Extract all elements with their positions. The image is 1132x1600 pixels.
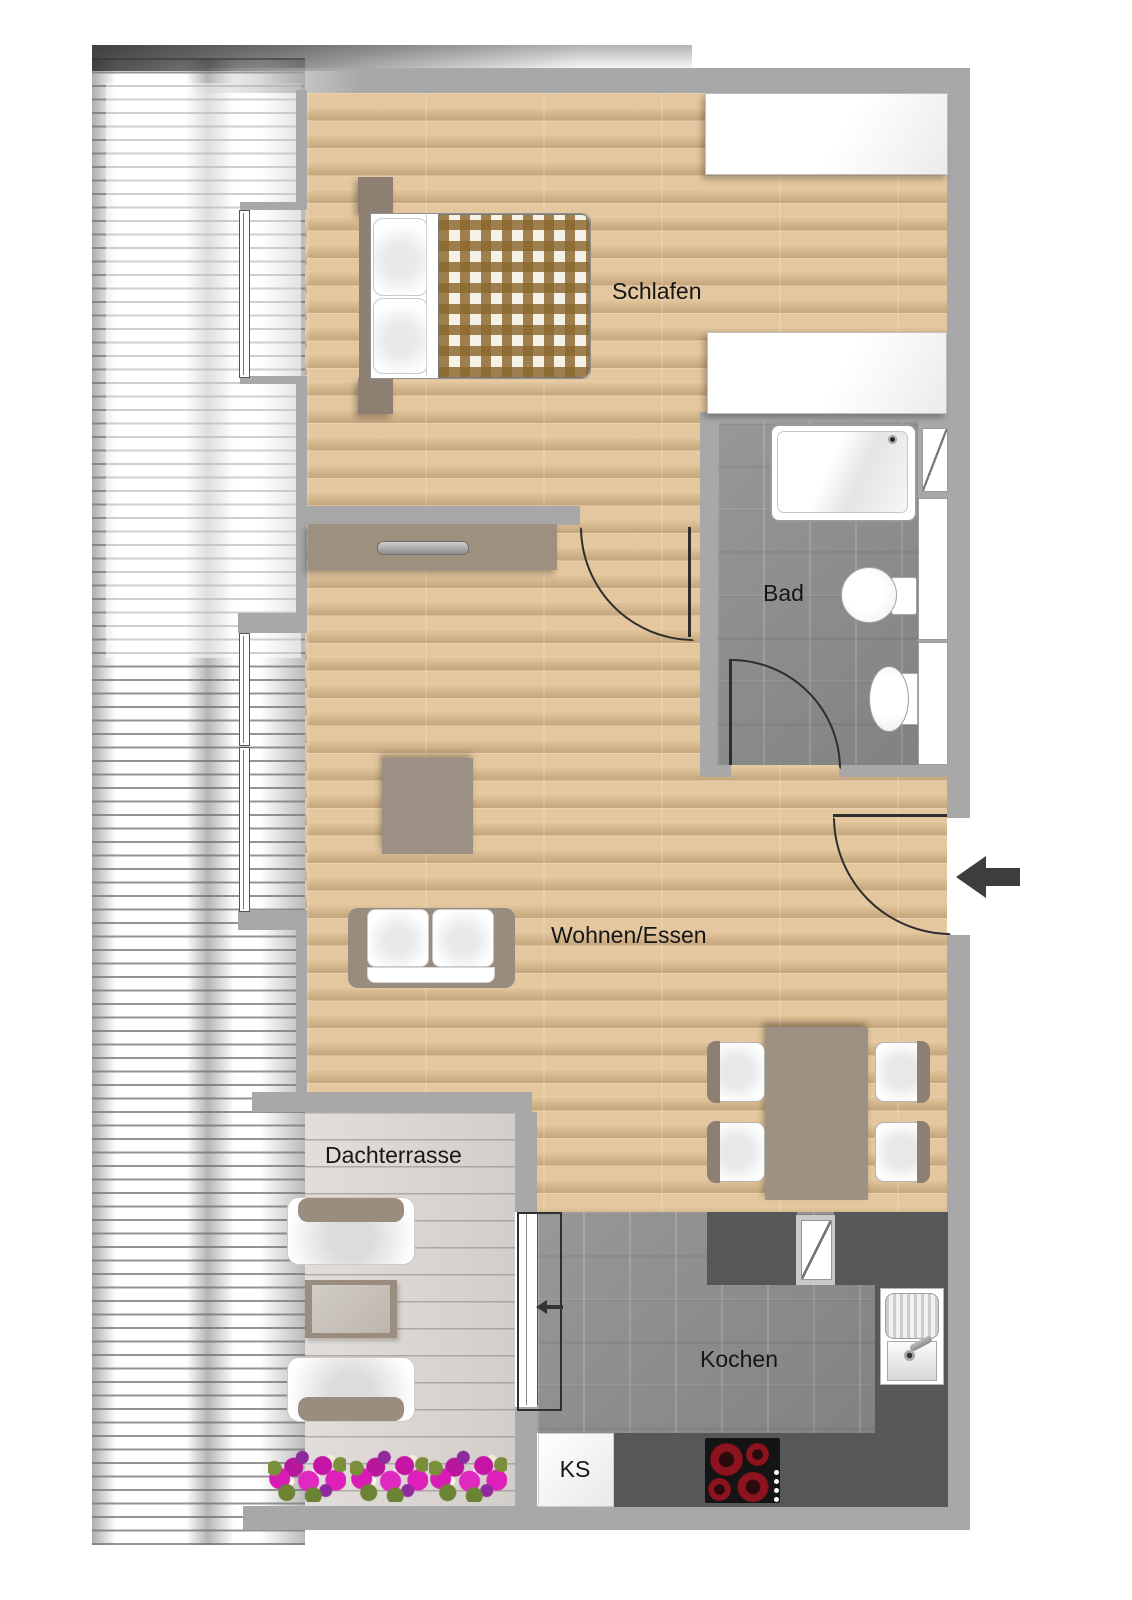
terrace-right-wall-lower	[515, 1407, 537, 1530]
double-bed	[359, 212, 590, 379]
kitchen-label: Kochen	[700, 1348, 778, 1371]
stove-burner-large-br	[737, 1472, 769, 1502]
kitchen-sink-drainboard	[885, 1293, 939, 1339]
kitchen-counter-right-top	[834, 1212, 948, 1285]
bedroom-living-divider-wall	[296, 506, 580, 525]
flower-box-right	[429, 1450, 507, 1502]
floor-plan: KS Schlafen Bad Wohnen/Essen Dachterra	[0, 0, 1132, 1600]
wardrobe-middle	[707, 332, 947, 414]
stove-burner-small-tr	[746, 1443, 769, 1466]
nightstand-top	[358, 177, 393, 213]
bathroom-sink	[869, 666, 909, 732]
bathroom-shaft-upper	[918, 498, 948, 640]
left-wall-seg-2	[296, 384, 307, 613]
dining-table	[765, 1027, 868, 1200]
roof-light-patch	[106, 83, 301, 658]
fridge-label: KS	[538, 1458, 612, 1481]
toilet-bowl	[841, 567, 897, 623]
right-wall-lower	[947, 935, 970, 1530]
sofa-cushion-right	[432, 909, 494, 967]
sofa-cushion-left	[367, 909, 429, 967]
terrace-right-wall-upper	[515, 1112, 537, 1212]
bathroom-left-wall	[700, 412, 717, 777]
top-wall	[190, 68, 970, 93]
bathroom-bottom-wall-left	[700, 765, 731, 777]
kitchen-counter-top-block	[707, 1212, 797, 1285]
living-alcove-step-top	[238, 613, 307, 633]
bathtub	[770, 424, 917, 522]
flower-box-middle	[350, 1450, 428, 1502]
bottom-wall	[243, 1506, 970, 1530]
living-alcove-step-bottom	[238, 910, 307, 930]
bedroom-label: Schlafen	[612, 280, 702, 303]
bedroom-alcove-step-top	[240, 202, 307, 210]
stove-burner-large-tl	[710, 1443, 743, 1476]
living-window-lower	[239, 747, 250, 912]
bed-duvet-checkered	[438, 214, 590, 378]
living-window-upper	[239, 633, 250, 746]
stove	[705, 1438, 780, 1503]
roof-slats	[92, 58, 305, 1545]
dining-chair-bottom-right	[875, 1122, 929, 1182]
terrace-chair-top	[287, 1197, 415, 1265]
terrace-label: Dachterrasse	[325, 1144, 462, 1167]
sofa-seat	[367, 967, 495, 983]
coffee-table	[382, 758, 473, 854]
living-label: Wohnen/Essen	[551, 924, 707, 947]
kitchen-faucet-base	[904, 1350, 915, 1361]
bedroom-alcove-step-bottom	[240, 376, 307, 384]
bed-pillow-bottom	[373, 298, 428, 374]
bed-pillow-top	[373, 218, 428, 296]
bathroom-label: Bad	[763, 582, 804, 605]
bathtub-basin	[777, 431, 908, 513]
entrance-arrow-icon	[956, 856, 1020, 898]
stove-burner-small-bl	[708, 1478, 731, 1501]
sideboard-handle	[377, 541, 469, 555]
bathroom-window	[922, 428, 948, 492]
nightstand-bottom	[358, 378, 393, 414]
bedroom-window	[239, 210, 250, 378]
right-wall-upper	[947, 68, 970, 818]
kitchen-window	[801, 1220, 832, 1280]
terrace-chair-bottom	[287, 1357, 415, 1422]
dining-chair-top-right	[875, 1042, 929, 1102]
sliding-door-arrow-icon	[536, 1300, 563, 1314]
dining-chair-bottom-left	[708, 1122, 765, 1182]
wardrobe-top	[705, 93, 948, 175]
dining-chair-top-left	[708, 1042, 765, 1102]
sideboard	[308, 524, 557, 570]
terrace-top-wall	[252, 1092, 532, 1112]
sofa	[348, 908, 515, 988]
kitchen-sink-unit	[880, 1288, 944, 1385]
bathroom-shaft-lower	[918, 642, 948, 765]
bathroom-bottom-wall-right	[839, 765, 947, 777]
left-wall-seg-1	[296, 90, 307, 203]
bathtub-drain	[888, 435, 897, 444]
terrace-table	[305, 1280, 397, 1338]
flower-box-left	[268, 1450, 346, 1502]
kitchen-counter-bottom	[612, 1433, 948, 1507]
left-wall-seg-3	[296, 930, 307, 1092]
